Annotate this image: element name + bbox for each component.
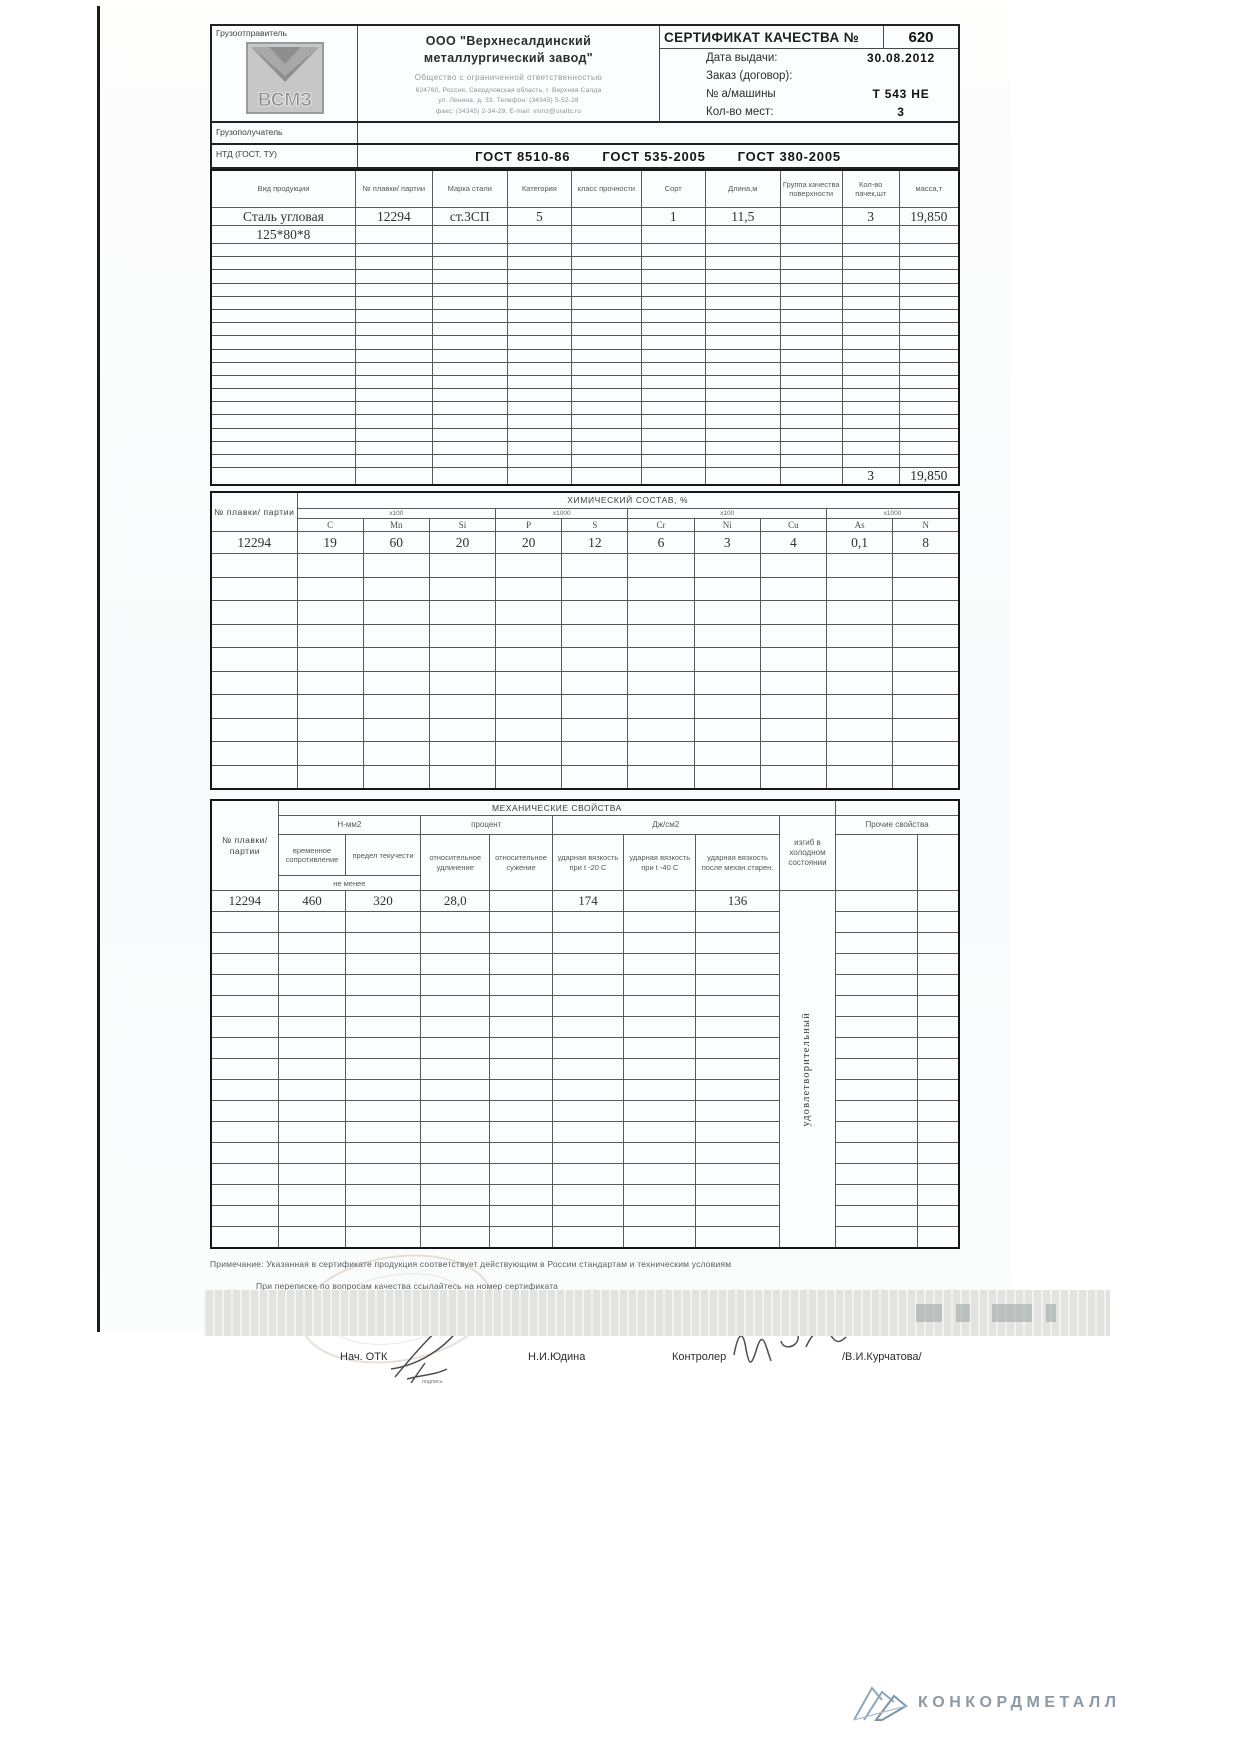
empty-cell	[355, 375, 432, 388]
empty-cell	[836, 1143, 918, 1164]
empty-cell	[641, 296, 705, 309]
empty-cell	[346, 1227, 421, 1249]
empty-cell	[211, 1017, 278, 1038]
empty-table-row	[211, 270, 959, 283]
yield-value: 320	[346, 891, 421, 912]
empty-cell	[420, 996, 490, 1017]
certificate-title-row: СЕРТИФИКАТ КАЧЕСТВА № 620	[660, 26, 958, 49]
empty-cell	[696, 1038, 780, 1059]
empty-cell	[490, 933, 552, 954]
element-header: P	[496, 519, 562, 532]
empty-cell	[496, 742, 562, 766]
empty-cell	[624, 1227, 696, 1249]
empty-cell	[842, 270, 899, 283]
empty-cell	[278, 1017, 345, 1038]
company-type: Общество с ограниченной ответственностью	[358, 73, 659, 82]
other-b-value	[918, 891, 959, 912]
empty-cell	[705, 468, 780, 486]
empty-cell	[899, 323, 959, 336]
places-label: Кол-во мест:	[706, 106, 844, 118]
empty-cell	[624, 954, 696, 975]
empty-cell	[297, 671, 363, 695]
controller-label: Контролер	[672, 1351, 726, 1363]
empty-cell	[628, 742, 694, 766]
empty-cell	[893, 648, 959, 672]
empty-cell	[641, 283, 705, 296]
empty-cell	[705, 389, 780, 402]
empty-cell	[562, 765, 628, 789]
empty-cell	[836, 996, 918, 1017]
tensile-header: временное сопротивление	[278, 835, 345, 876]
empty-cell	[827, 671, 893, 695]
empty-cell	[842, 309, 899, 322]
empty-cell	[624, 1206, 696, 1227]
empty-cell	[780, 468, 842, 486]
empty-cell	[893, 671, 959, 695]
empty-table-row	[211, 742, 959, 766]
empty-cell	[694, 695, 760, 719]
empty-cell	[432, 389, 507, 402]
empty-cell	[780, 336, 842, 349]
empty-cell	[507, 389, 571, 402]
empty-cell	[836, 1122, 918, 1143]
empty-cell	[211, 912, 278, 933]
empty-table-row	[211, 648, 959, 672]
empty-table-row	[211, 389, 959, 402]
empty-cell	[624, 975, 696, 996]
empty-table-row	[211, 283, 959, 296]
empty-cell	[297, 601, 363, 625]
empty-cell	[429, 624, 495, 648]
empty-cell	[552, 1059, 624, 1080]
empty-cell	[211, 362, 355, 375]
empty-cell	[842, 336, 899, 349]
empty-cell	[842, 441, 899, 454]
empty-cell	[355, 296, 432, 309]
empty-table-row	[211, 257, 959, 270]
empty-cell	[780, 270, 842, 283]
company-addr-1: 624760, Россия, Свердловская область, г.…	[358, 86, 659, 96]
bend-header: изгиб в холодном состоянии	[779, 816, 835, 891]
empty-cell	[552, 1080, 624, 1101]
empty-cell	[432, 455, 507, 468]
contraction-value	[490, 891, 552, 912]
unit-header-jcm2: Дж/см2	[552, 816, 779, 835]
empty-table-row	[211, 624, 959, 648]
empty-cell	[641, 402, 705, 415]
places-value: 3	[844, 105, 958, 119]
empty-cell	[705, 257, 780, 270]
empty-cell	[490, 954, 552, 975]
empty-cell	[842, 323, 899, 336]
empty-cell	[346, 1017, 421, 1038]
mech-title-row: № плавки/ партии МЕХАНИЧЕСКИЕ СВОЙСТВА	[211, 800, 959, 816]
contraction-header: относительное сужение	[490, 835, 552, 891]
empty-cell	[918, 1080, 959, 1101]
empty-cell	[641, 468, 705, 486]
empty-cell	[432, 323, 507, 336]
not-less-label: не менее	[278, 876, 420, 891]
empty-cell	[420, 1122, 490, 1143]
empty-cell	[363, 648, 429, 672]
empty-cell	[552, 1206, 624, 1227]
empty-cell	[278, 954, 345, 975]
empty-cell	[211, 257, 355, 270]
truck-label: № а/машины	[706, 88, 844, 100]
empty-cell	[496, 718, 562, 742]
empty-cell	[552, 975, 624, 996]
scan-artifact	[1046, 1304, 1056, 1322]
empty-cell	[211, 1038, 278, 1059]
empty-cell	[572, 296, 642, 309]
empty-cell	[624, 1122, 696, 1143]
multiplier-header: х100	[628, 509, 827, 519]
empty-table-row	[211, 996, 959, 1017]
empty-cell	[641, 349, 705, 362]
empty-cell	[899, 415, 959, 428]
empty-cell	[705, 441, 780, 454]
scan-artifact	[956, 1304, 970, 1322]
empty-cell	[346, 1080, 421, 1101]
empty-cell	[893, 765, 959, 789]
empty-cell	[278, 1185, 345, 1206]
empty-cell	[507, 244, 571, 257]
impact-20-value: 174	[552, 891, 624, 912]
table-row: 125*80*8	[211, 226, 959, 244]
empty-cell	[836, 1059, 918, 1080]
empty-cell	[705, 309, 780, 322]
empty-cell	[429, 742, 495, 766]
empty-cell	[346, 1164, 421, 1185]
empty-cell	[572, 362, 642, 375]
empty-cell	[211, 933, 278, 954]
empty-cell	[432, 362, 507, 375]
empty-cell	[211, 415, 355, 428]
table-cell: 20	[429, 532, 495, 554]
impact-40-value	[624, 891, 696, 912]
empty-cell	[420, 1017, 490, 1038]
empty-cell	[760, 671, 826, 695]
empty-cell	[628, 648, 694, 672]
mechanical-properties-table: № плавки/ партии МЕХАНИЧЕСКИЕ СВОЙСТВА Н…	[210, 799, 960, 1249]
empty-cell	[507, 428, 571, 441]
empty-cell	[562, 554, 628, 578]
empty-cell	[918, 1227, 959, 1249]
empty-cell	[297, 577, 363, 601]
empty-cell	[836, 912, 918, 933]
empty-cell	[641, 362, 705, 375]
empty-table-row	[211, 577, 959, 601]
empty-cell	[363, 695, 429, 719]
empty-cell	[363, 624, 429, 648]
empty-cell	[827, 695, 893, 719]
signature-caption: подпись	[422, 1379, 443, 1385]
table-cell: 19	[297, 532, 363, 554]
empty-cell	[705, 296, 780, 309]
empty-cell	[760, 742, 826, 766]
mech-rows: 12294 460 320 28,0 174 136 удовлетворите…	[211, 891, 959, 1249]
empty-cell	[694, 624, 760, 648]
ntd-row: НТД (ГОСТ, ТУ) ГОСТ 8510-86 ГОСТ 535-200…	[210, 145, 960, 169]
table-cell	[507, 226, 571, 244]
vsmz-logo-icon: ВСМЗ	[239, 42, 331, 114]
shipper-label: Грузоотправитель	[216, 28, 353, 38]
empty-table-row	[211, 1143, 959, 1164]
empty-table-row	[211, 428, 959, 441]
empty-cell	[211, 1206, 278, 1227]
element-header: Mn	[363, 519, 429, 532]
empty-cell	[420, 933, 490, 954]
empty-cell	[628, 718, 694, 742]
empty-cell	[211, 1164, 278, 1185]
empty-cell	[420, 1059, 490, 1080]
empty-cell	[827, 718, 893, 742]
empty-cell	[507, 375, 571, 388]
empty-cell	[696, 1017, 780, 1038]
empty-cell	[429, 671, 495, 695]
empty-table-row	[211, 441, 959, 454]
empty-cell	[780, 415, 842, 428]
empty-cell	[278, 1164, 345, 1185]
empty-cell	[780, 244, 842, 257]
empty-cell	[420, 912, 490, 933]
empty-cell	[827, 765, 893, 789]
chemical-composition-table: № плавки/ партии ХИМИЧЕСКИЙ СОСТАВ, % х1…	[210, 491, 960, 790]
empty-cell	[572, 468, 642, 486]
otk-chief-name: Н.И.Юдина	[528, 1351, 585, 1363]
element-header: Cr	[628, 519, 694, 532]
scan-artifact-band	[204, 1290, 1110, 1336]
ntd-standards: ГОСТ 8510-86 ГОСТ 535-2005 ГОСТ 380-2005	[358, 145, 958, 167]
empty-cell	[211, 1101, 278, 1122]
empty-cell	[490, 912, 552, 933]
empty-cell	[641, 336, 705, 349]
empty-cell	[346, 933, 421, 954]
empty-table-row	[211, 933, 959, 954]
empty-table-row	[211, 1038, 959, 1059]
empty-table-row	[211, 671, 959, 695]
empty-cell	[780, 428, 842, 441]
empty-cell	[694, 577, 760, 601]
empty-table-row	[211, 975, 959, 996]
empty-cell	[355, 415, 432, 428]
scanned-page: Грузоотправитель ВСМЗ ООО "Верхнесалдинс…	[100, 6, 1010, 1332]
empty-table-row	[211, 336, 959, 349]
empty-cell	[363, 577, 429, 601]
product-totals: 3 19,850	[211, 468, 959, 486]
empty-cell	[836, 1206, 918, 1227]
empty-cell	[278, 1101, 345, 1122]
empty-cell	[211, 554, 297, 578]
table-cell: 8	[893, 532, 959, 554]
empty-cell	[836, 933, 918, 954]
empty-cell	[836, 954, 918, 975]
empty-table-row	[211, 1206, 959, 1227]
total-packs: 3	[842, 468, 899, 486]
empty-cell	[507, 270, 571, 283]
empty-cell	[572, 415, 642, 428]
empty-cell	[496, 695, 562, 719]
empty-cell	[760, 695, 826, 719]
empty-cell	[490, 996, 552, 1017]
empty-cell	[490, 1080, 552, 1101]
empty-table-row	[211, 415, 959, 428]
element-header: Si	[429, 519, 495, 532]
empty-cell	[346, 1143, 421, 1164]
empty-cell	[562, 718, 628, 742]
empty-cell	[780, 296, 842, 309]
empty-cell	[842, 402, 899, 415]
empty-cell	[211, 389, 355, 402]
empty-cell	[780, 362, 842, 375]
elongation-value: 28,0	[420, 891, 490, 912]
empty-cell	[696, 1143, 780, 1164]
empty-cell	[836, 1038, 918, 1059]
consignee-label: Грузополучатель	[212, 123, 358, 143]
table-cell	[705, 226, 780, 244]
empty-cell	[827, 624, 893, 648]
empty-cell	[211, 336, 355, 349]
empty-cell	[641, 270, 705, 283]
empty-cell	[355, 270, 432, 283]
empty-cell	[696, 1122, 780, 1143]
empty-cell	[624, 1164, 696, 1185]
standard-2: ГОСТ 535-2005	[602, 149, 705, 164]
table-cell: ст.3СП	[432, 208, 507, 226]
empty-cell	[346, 1122, 421, 1143]
empty-cell	[346, 1101, 421, 1122]
empty-table-row	[211, 455, 959, 468]
empty-cell	[420, 1038, 490, 1059]
empty-cell	[918, 1206, 959, 1227]
empty-cell	[552, 1017, 624, 1038]
empty-cell	[346, 1185, 421, 1206]
empty-cell	[572, 336, 642, 349]
empty-cell	[432, 257, 507, 270]
empty-cell	[355, 244, 432, 257]
concord-metal-logo: КОНКОРДМЕТАЛЛ	[852, 1682, 1121, 1724]
empty-cell	[211, 996, 278, 1017]
other-a-value	[836, 891, 918, 912]
empty-cell	[211, 577, 297, 601]
empty-cell	[355, 349, 432, 362]
empty-table-row	[211, 912, 959, 933]
column-header: Кол-во пачек,шт	[842, 170, 899, 208]
empty-cell	[211, 402, 355, 415]
empty-cell	[490, 1143, 552, 1164]
empty-cell	[211, 468, 355, 486]
empty-cell	[628, 695, 694, 719]
column-header: № плавки/ партии	[355, 170, 432, 208]
empty-cell	[628, 577, 694, 601]
empty-table-row	[211, 1080, 959, 1101]
empty-cell	[572, 455, 642, 468]
empty-cell	[624, 1143, 696, 1164]
empty-cell	[355, 402, 432, 415]
empty-cell	[355, 257, 432, 270]
table-row: 1229419602020126340,18	[211, 532, 959, 554]
concord-brand-text: КОНКОРДМЕТАЛЛ	[918, 1694, 1121, 1712]
product-empty-rows	[211, 244, 959, 468]
table-cell	[780, 208, 842, 226]
empty-cell	[899, 428, 959, 441]
empty-cell	[432, 349, 507, 362]
empty-cell	[899, 362, 959, 375]
empty-table-row	[211, 1164, 959, 1185]
mech-data-row: 12294 460 320 28,0 174 136 удовлетворите…	[211, 891, 959, 912]
table-cell	[641, 226, 705, 244]
empty-cell	[918, 996, 959, 1017]
empty-cell	[918, 1038, 959, 1059]
empty-cell	[842, 296, 899, 309]
empty-table-row	[211, 375, 959, 388]
empty-cell	[641, 375, 705, 388]
empty-table-row	[211, 1122, 959, 1143]
field-truck: № а/машины Т 543 НЕ	[660, 85, 958, 103]
empty-cell	[780, 309, 842, 322]
empty-cell	[760, 601, 826, 625]
column-header: масса,т	[899, 170, 959, 208]
empty-cell	[705, 428, 780, 441]
empty-table-row	[211, 554, 959, 578]
empty-cell	[297, 695, 363, 719]
empty-cell	[624, 1185, 696, 1206]
consignee-row: Грузополучатель	[210, 123, 960, 145]
empty-cell	[696, 912, 780, 933]
empty-table-row	[211, 323, 959, 336]
other-col-a	[836, 835, 918, 891]
empty-cell	[346, 1038, 421, 1059]
table-cell: 60	[363, 532, 429, 554]
empty-cell	[899, 402, 959, 415]
empty-cell	[641, 309, 705, 322]
empty-table-row	[211, 1185, 959, 1206]
empty-cell	[363, 554, 429, 578]
empty-cell	[760, 577, 826, 601]
empty-cell	[899, 309, 959, 322]
empty-cell	[355, 389, 432, 402]
scan-artifact	[916, 1304, 942, 1322]
empty-cell	[429, 601, 495, 625]
empty-cell	[278, 975, 345, 996]
empty-cell	[429, 577, 495, 601]
empty-cell	[297, 624, 363, 648]
empty-cell	[278, 1122, 345, 1143]
empty-cell	[420, 954, 490, 975]
vsmz-logo-text: ВСМЗ	[257, 90, 311, 111]
table-cell: 3	[842, 208, 899, 226]
empty-cell	[628, 765, 694, 789]
empty-cell	[432, 428, 507, 441]
empty-cell	[346, 1059, 421, 1080]
empty-cell	[211, 375, 355, 388]
table-cell: 19,850	[899, 208, 959, 226]
empty-cell	[297, 765, 363, 789]
empty-cell	[346, 954, 421, 975]
empty-cell	[760, 718, 826, 742]
empty-cell	[624, 1017, 696, 1038]
certificate-number: 620	[883, 26, 958, 48]
empty-table-row	[211, 349, 959, 362]
empty-cell	[624, 1038, 696, 1059]
empty-cell	[562, 648, 628, 672]
empty-cell	[572, 389, 642, 402]
empty-cell	[490, 1059, 552, 1080]
certificate-header: Грузоотправитель ВСМЗ ООО "Верхнесалдинс…	[210, 24, 960, 123]
empty-cell	[429, 695, 495, 719]
field-order: Заказ (договор):	[660, 67, 958, 85]
empty-cell	[211, 648, 297, 672]
